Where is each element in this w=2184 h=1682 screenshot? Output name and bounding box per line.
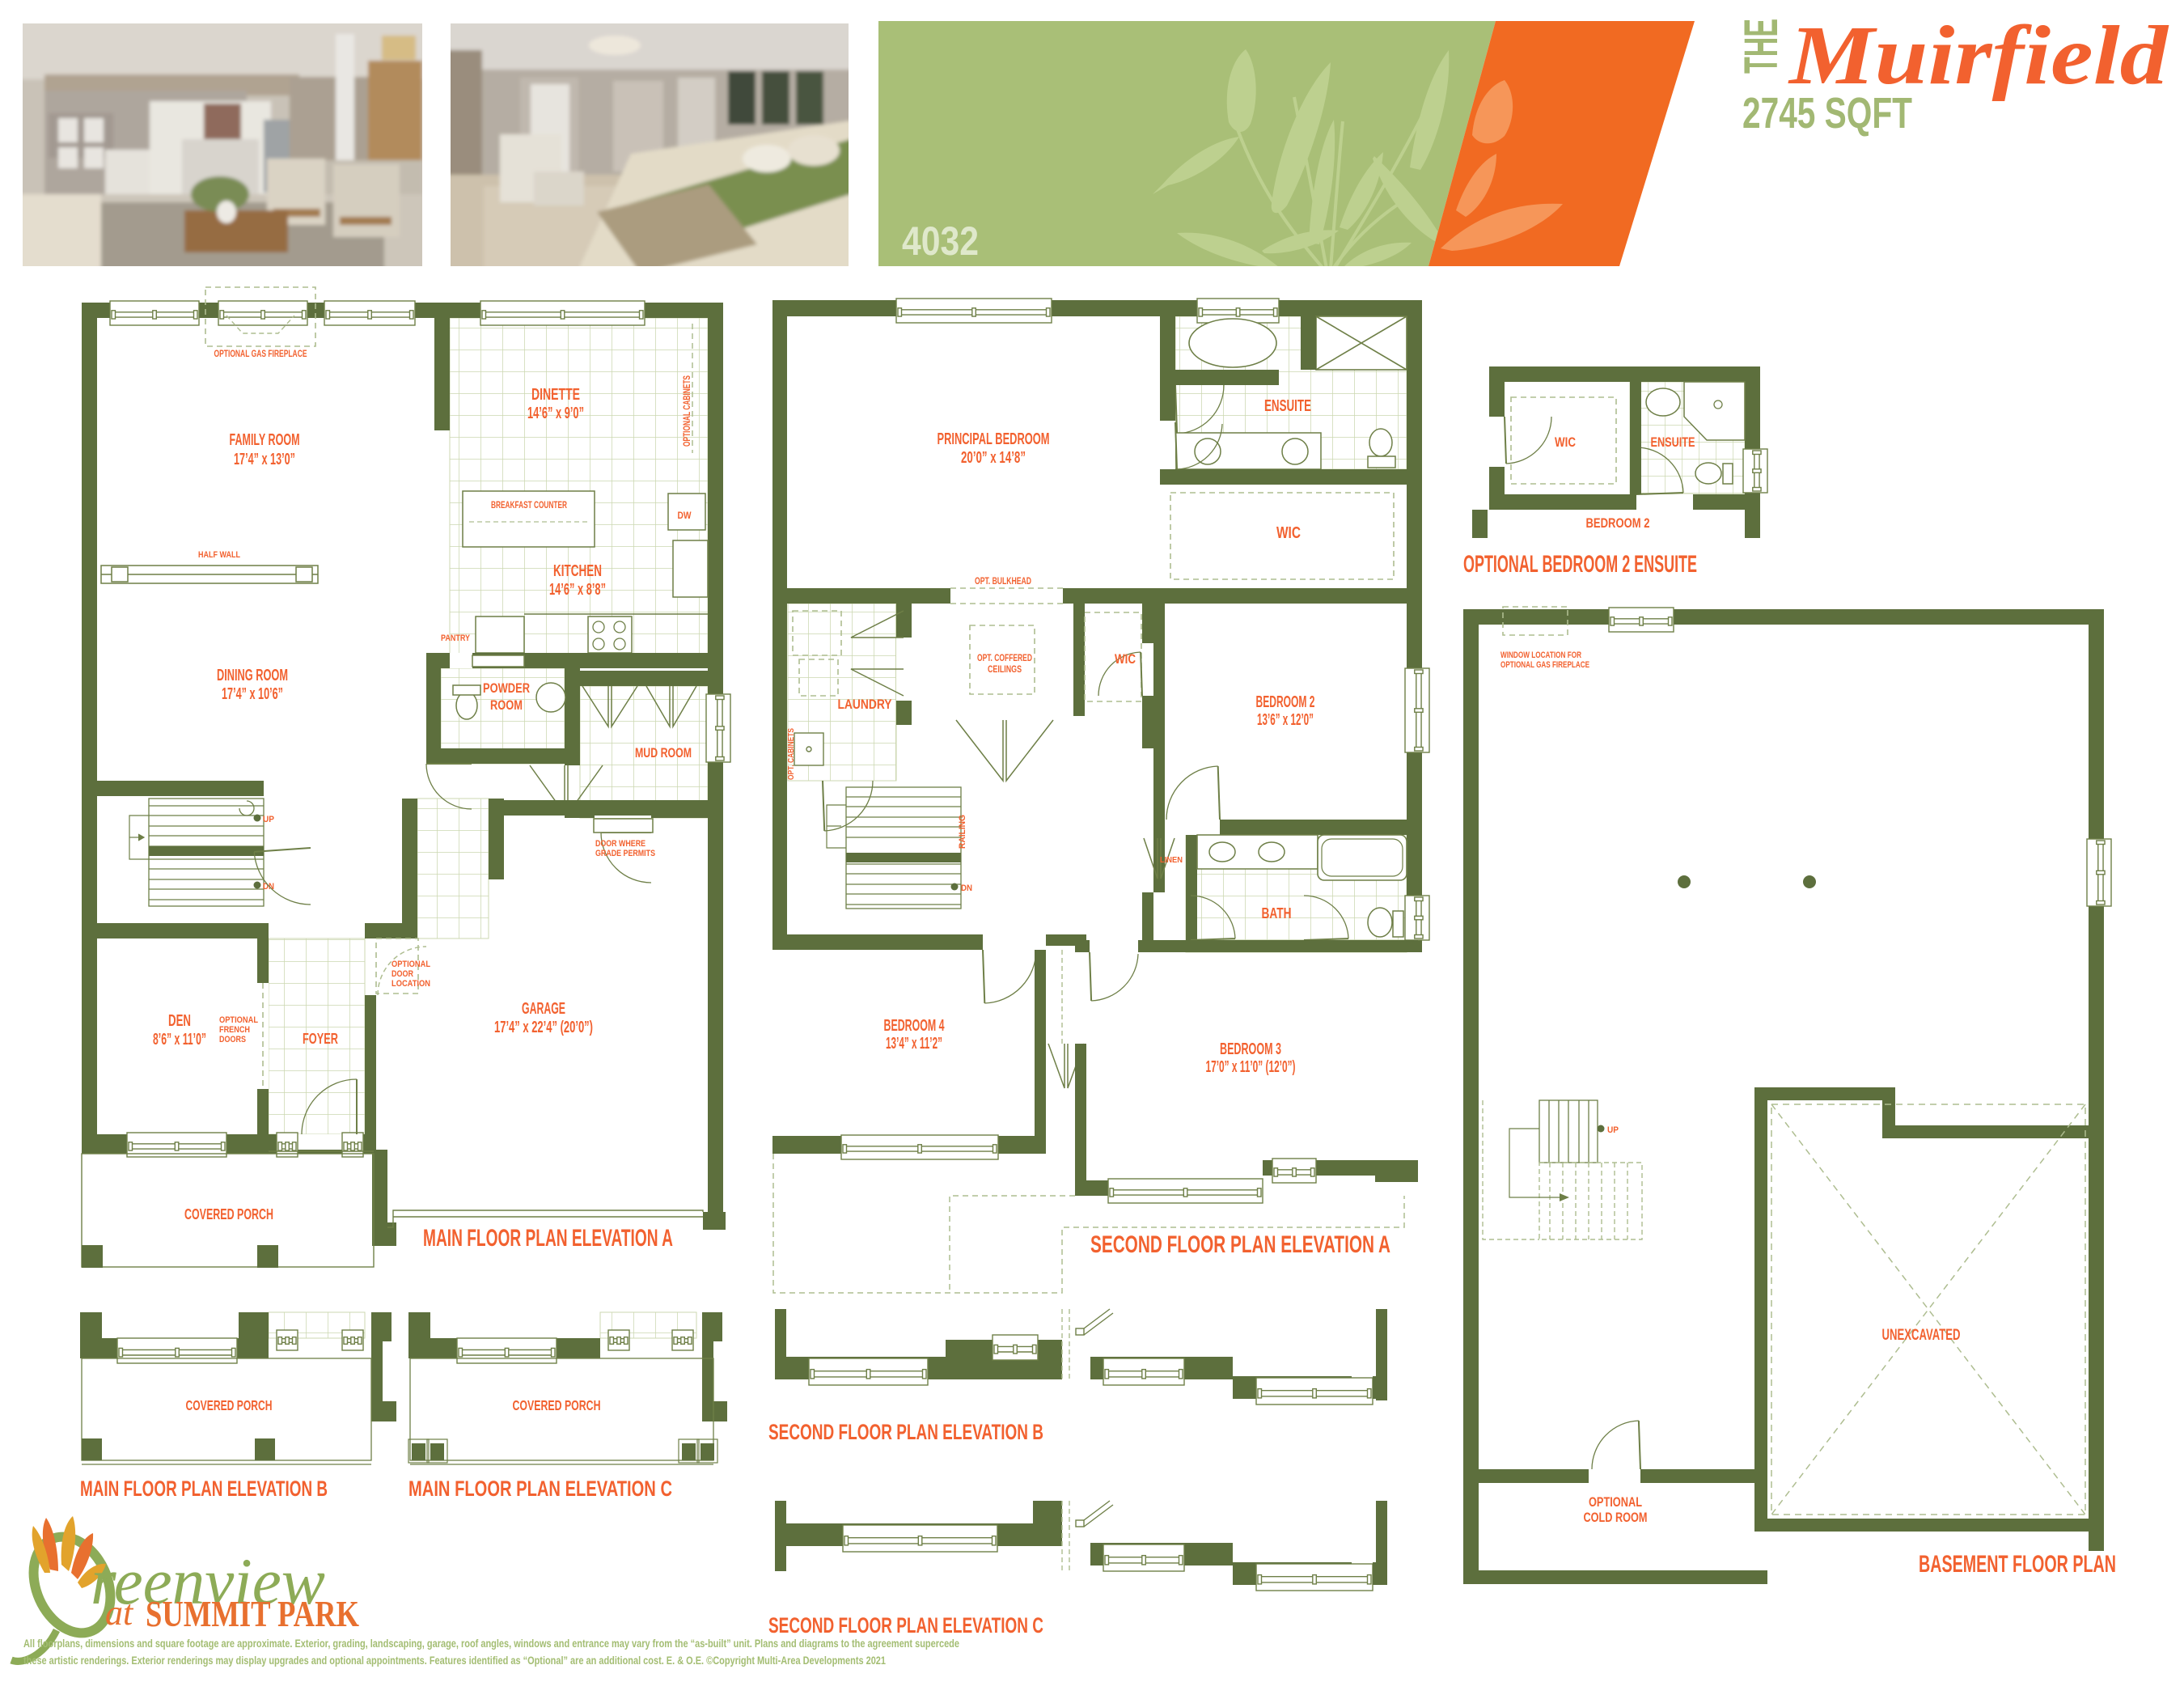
svg-text:14’6” x 8’8”: 14’6” x 8’8” xyxy=(549,581,606,599)
svg-text:SUMMIT PARK: SUMMIT PARK xyxy=(146,1593,359,1634)
svg-text:OPTIONAL CABINETS: OPTIONAL CABINETS xyxy=(681,375,692,447)
svg-text:MAIN FLOOR PLAN ELEVATION C: MAIN FLOOR PLAN ELEVATION C xyxy=(408,1477,672,1501)
svg-text:MAIN FLOOR PLAN ELEVATION B: MAIN FLOOR PLAN ELEVATION B xyxy=(80,1477,328,1501)
svg-text:CEILINGS: CEILINGS xyxy=(988,663,1022,675)
svg-text:14’6” x 9’0”: 14’6” x 9’0” xyxy=(527,405,584,422)
svg-text:8’6” x 11’0”: 8’6” x 11’0” xyxy=(153,1031,206,1049)
svg-text:DOOR WHERE: DOOR WHERE xyxy=(595,839,645,849)
svg-text:BEDROOM 2: BEDROOM 2 xyxy=(1256,693,1315,711)
svg-text:PRINCIPAL BEDROOM: PRINCIPAL BEDROOM xyxy=(938,430,1050,448)
svg-text:17’4” x 22’4” (20’0”): 17’4” x 22’4” (20’0”) xyxy=(494,1019,593,1036)
svg-text:UP: UP xyxy=(263,815,274,824)
svg-text:DW: DW xyxy=(678,510,692,521)
svg-text:FRENCH: FRENCH xyxy=(219,1025,250,1035)
svg-text:13’6” x 12’0”: 13’6” x 12’0” xyxy=(1257,711,1314,729)
svg-text:KITCHEN: KITCHEN xyxy=(553,562,602,580)
svg-text:ENSUITE: ENSUITE xyxy=(1264,397,1311,415)
svg-text:OPTIONAL GAS FIREPLACE: OPTIONAL GAS FIREPLACE xyxy=(1500,660,1589,670)
svg-text:20’0” x 14’8”: 20’0” x 14’8” xyxy=(961,449,1026,467)
svg-text:SECOND FLOOR PLAN ELEVATION A: SECOND FLOOR PLAN ELEVATION A xyxy=(1090,1231,1390,1258)
svg-text:BEDROOM 2: BEDROOM 2 xyxy=(1586,515,1650,531)
svg-text:LOCATION: LOCATION xyxy=(392,979,430,989)
svg-text:BREAKFAST COUNTER: BREAKFAST COUNTER xyxy=(491,499,567,511)
svg-text:COVERED PORCH: COVERED PORCH xyxy=(184,1206,273,1222)
svg-text:BASEMENT FLOOR PLAN: BASEMENT FLOOR PLAN xyxy=(1919,1551,2116,1578)
svg-text:HALF WALL: HALF WALL xyxy=(198,550,240,560)
svg-text:OPT. CABINETS: OPT. CABINETS xyxy=(786,728,796,780)
svg-text:DINING ROOM: DINING ROOM xyxy=(217,667,288,684)
svg-text:PANTRY: PANTRY xyxy=(441,633,471,643)
svg-text:DEN: DEN xyxy=(168,1012,191,1030)
svg-text:FAMILY ROOM: FAMILY ROOM xyxy=(230,431,300,449)
svg-text:these artistic renderings. Ext: these artistic renderings. Exterior rend… xyxy=(23,1654,886,1667)
svg-text:GARAGE: GARAGE xyxy=(522,1000,565,1018)
svg-text:4032: 4032 xyxy=(902,218,979,264)
svg-text:at: at xyxy=(105,1593,134,1633)
svg-text:UNEXCAVATED: UNEXCAVATED xyxy=(1882,1327,1961,1344)
svg-text:THE: THE xyxy=(1735,19,1788,74)
svg-text:17’0” x 11’0” (12’0”): 17’0” x 11’0” (12’0”) xyxy=(1206,1058,1296,1076)
svg-text:COVERED PORCH: COVERED PORCH xyxy=(186,1397,273,1413)
svg-text:OPTIONAL GAS FIREPLACE: OPTIONAL GAS FIREPLACE xyxy=(214,348,307,359)
svg-text:WIC: WIC xyxy=(1115,651,1136,667)
svg-text:ROOM: ROOM xyxy=(490,697,523,713)
svg-text:MUD ROOM: MUD ROOM xyxy=(635,745,692,761)
svg-text:POWDER: POWDER xyxy=(483,680,530,696)
svg-text:Muirfield: Muirfield xyxy=(1788,9,2170,102)
svg-text:OPTIONAL BEDROOM 2 ENSUITE: OPTIONAL BEDROOM 2 ENSUITE xyxy=(1463,551,1697,578)
svg-text:13’4” x 11’2”: 13’4” x 11’2” xyxy=(886,1035,942,1053)
svg-text:OPTIONAL: OPTIONAL xyxy=(1589,1494,1642,1510)
svg-text:WIC: WIC xyxy=(1555,434,1576,450)
svg-text:MAIN FLOOR PLAN ELEVATION A: MAIN FLOOR PLAN ELEVATION A xyxy=(423,1225,673,1252)
svg-text:DN: DN xyxy=(961,883,972,893)
svg-text:SECOND FLOOR PLAN ELEVATION C: SECOND FLOOR PLAN ELEVATION C xyxy=(768,1613,1043,1638)
svg-text:OPTIONAL: OPTIONAL xyxy=(219,1015,258,1025)
svg-text:WINDOW LOCATION FOR: WINDOW LOCATION FOR xyxy=(1500,650,1581,660)
svg-text:OPTIONAL: OPTIONAL xyxy=(392,960,430,969)
svg-text:COVERED PORCH: COVERED PORCH xyxy=(513,1397,601,1413)
svg-text:UP: UP xyxy=(1607,1125,1619,1135)
svg-text:COLD ROOM: COLD ROOM xyxy=(1584,1510,1648,1525)
svg-text:FOYER: FOYER xyxy=(303,1031,338,1047)
svg-text:OPT. COFFERED: OPT. COFFERED xyxy=(977,652,1032,663)
svg-text:LINEN: LINEN xyxy=(1160,855,1183,865)
svg-text:WIC: WIC xyxy=(1276,524,1301,542)
svg-text:GRADE PERMITS: GRADE PERMITS xyxy=(595,849,655,858)
svg-text:BEDROOM 4: BEDROOM 4 xyxy=(884,1017,946,1035)
svg-text:BATH: BATH xyxy=(1262,905,1292,921)
svg-text:17’4” x 13’0”: 17’4” x 13’0” xyxy=(234,451,295,468)
svg-text:DOOR: DOOR xyxy=(392,969,413,979)
svg-text:All floorplans, dimensions and: All floorplans, dimensions and square fo… xyxy=(23,1637,959,1650)
svg-text:ENSUITE: ENSUITE xyxy=(1651,434,1695,450)
svg-text:DINETTE: DINETTE xyxy=(531,386,580,404)
svg-text:2745 SQFT: 2745 SQFT xyxy=(1742,89,1912,138)
svg-text:SECOND FLOOR PLAN ELEVATION B: SECOND FLOOR PLAN ELEVATION B xyxy=(768,1420,1043,1444)
svg-text:DOORS: DOORS xyxy=(219,1035,246,1044)
svg-text:RAILING: RAILING xyxy=(958,815,967,849)
svg-text:OPT. BULKHEAD: OPT. BULKHEAD xyxy=(975,575,1031,587)
svg-text:17’4” x 10’6”: 17’4” x 10’6” xyxy=(222,685,283,703)
svg-text:BEDROOM 3: BEDROOM 3 xyxy=(1220,1040,1281,1058)
svg-text:LAUNDRY: LAUNDRY xyxy=(838,697,893,712)
